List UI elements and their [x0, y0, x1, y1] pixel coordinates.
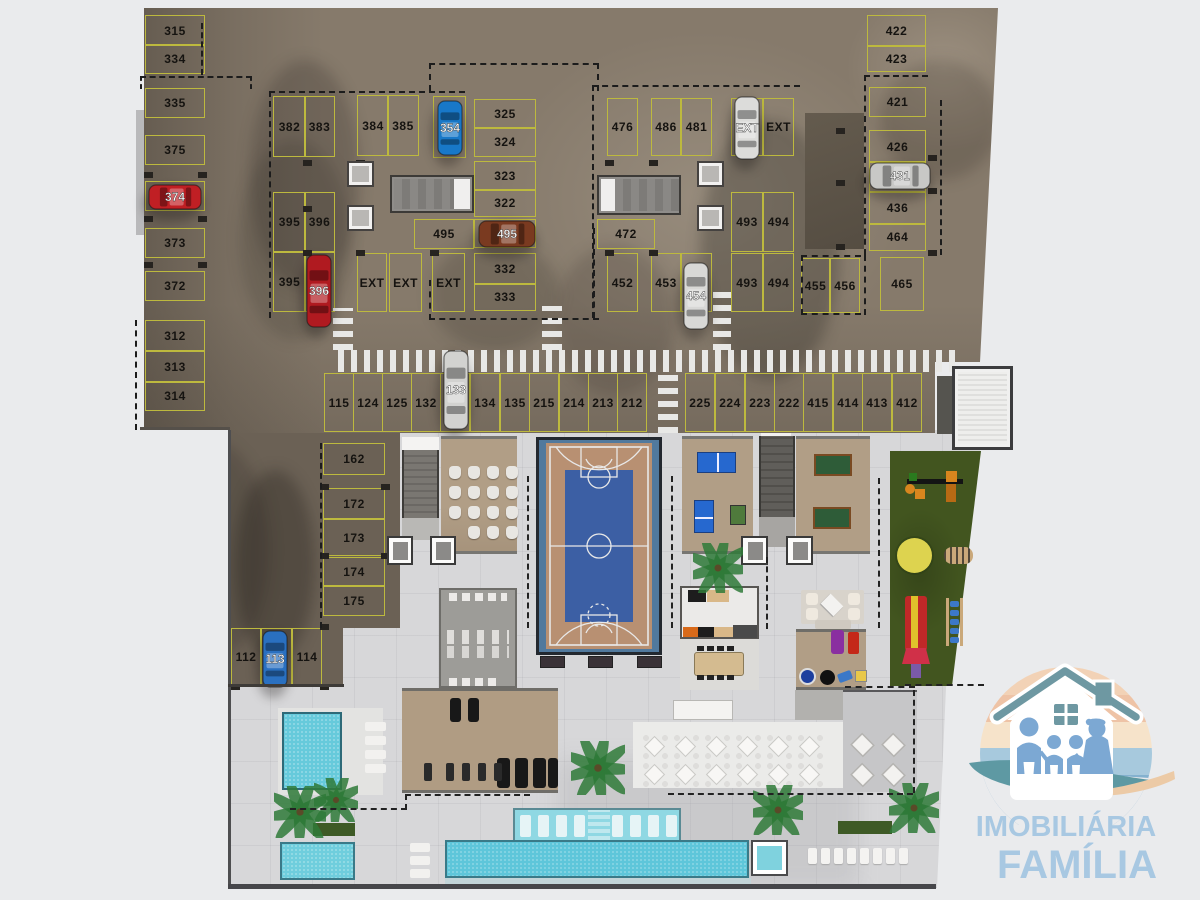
svg-text:354: 354	[440, 121, 460, 135]
svg-text:EXT: EXT	[735, 121, 759, 135]
svg-text:431: 431	[890, 169, 910, 183]
svg-text:374: 374	[165, 190, 185, 204]
svg-text:495: 495	[497, 227, 517, 241]
svg-text:133: 133	[446, 383, 466, 397]
svg-text:454: 454	[686, 289, 706, 303]
svg-text:396: 396	[309, 284, 329, 298]
svg-text:113: 113	[265, 652, 285, 666]
